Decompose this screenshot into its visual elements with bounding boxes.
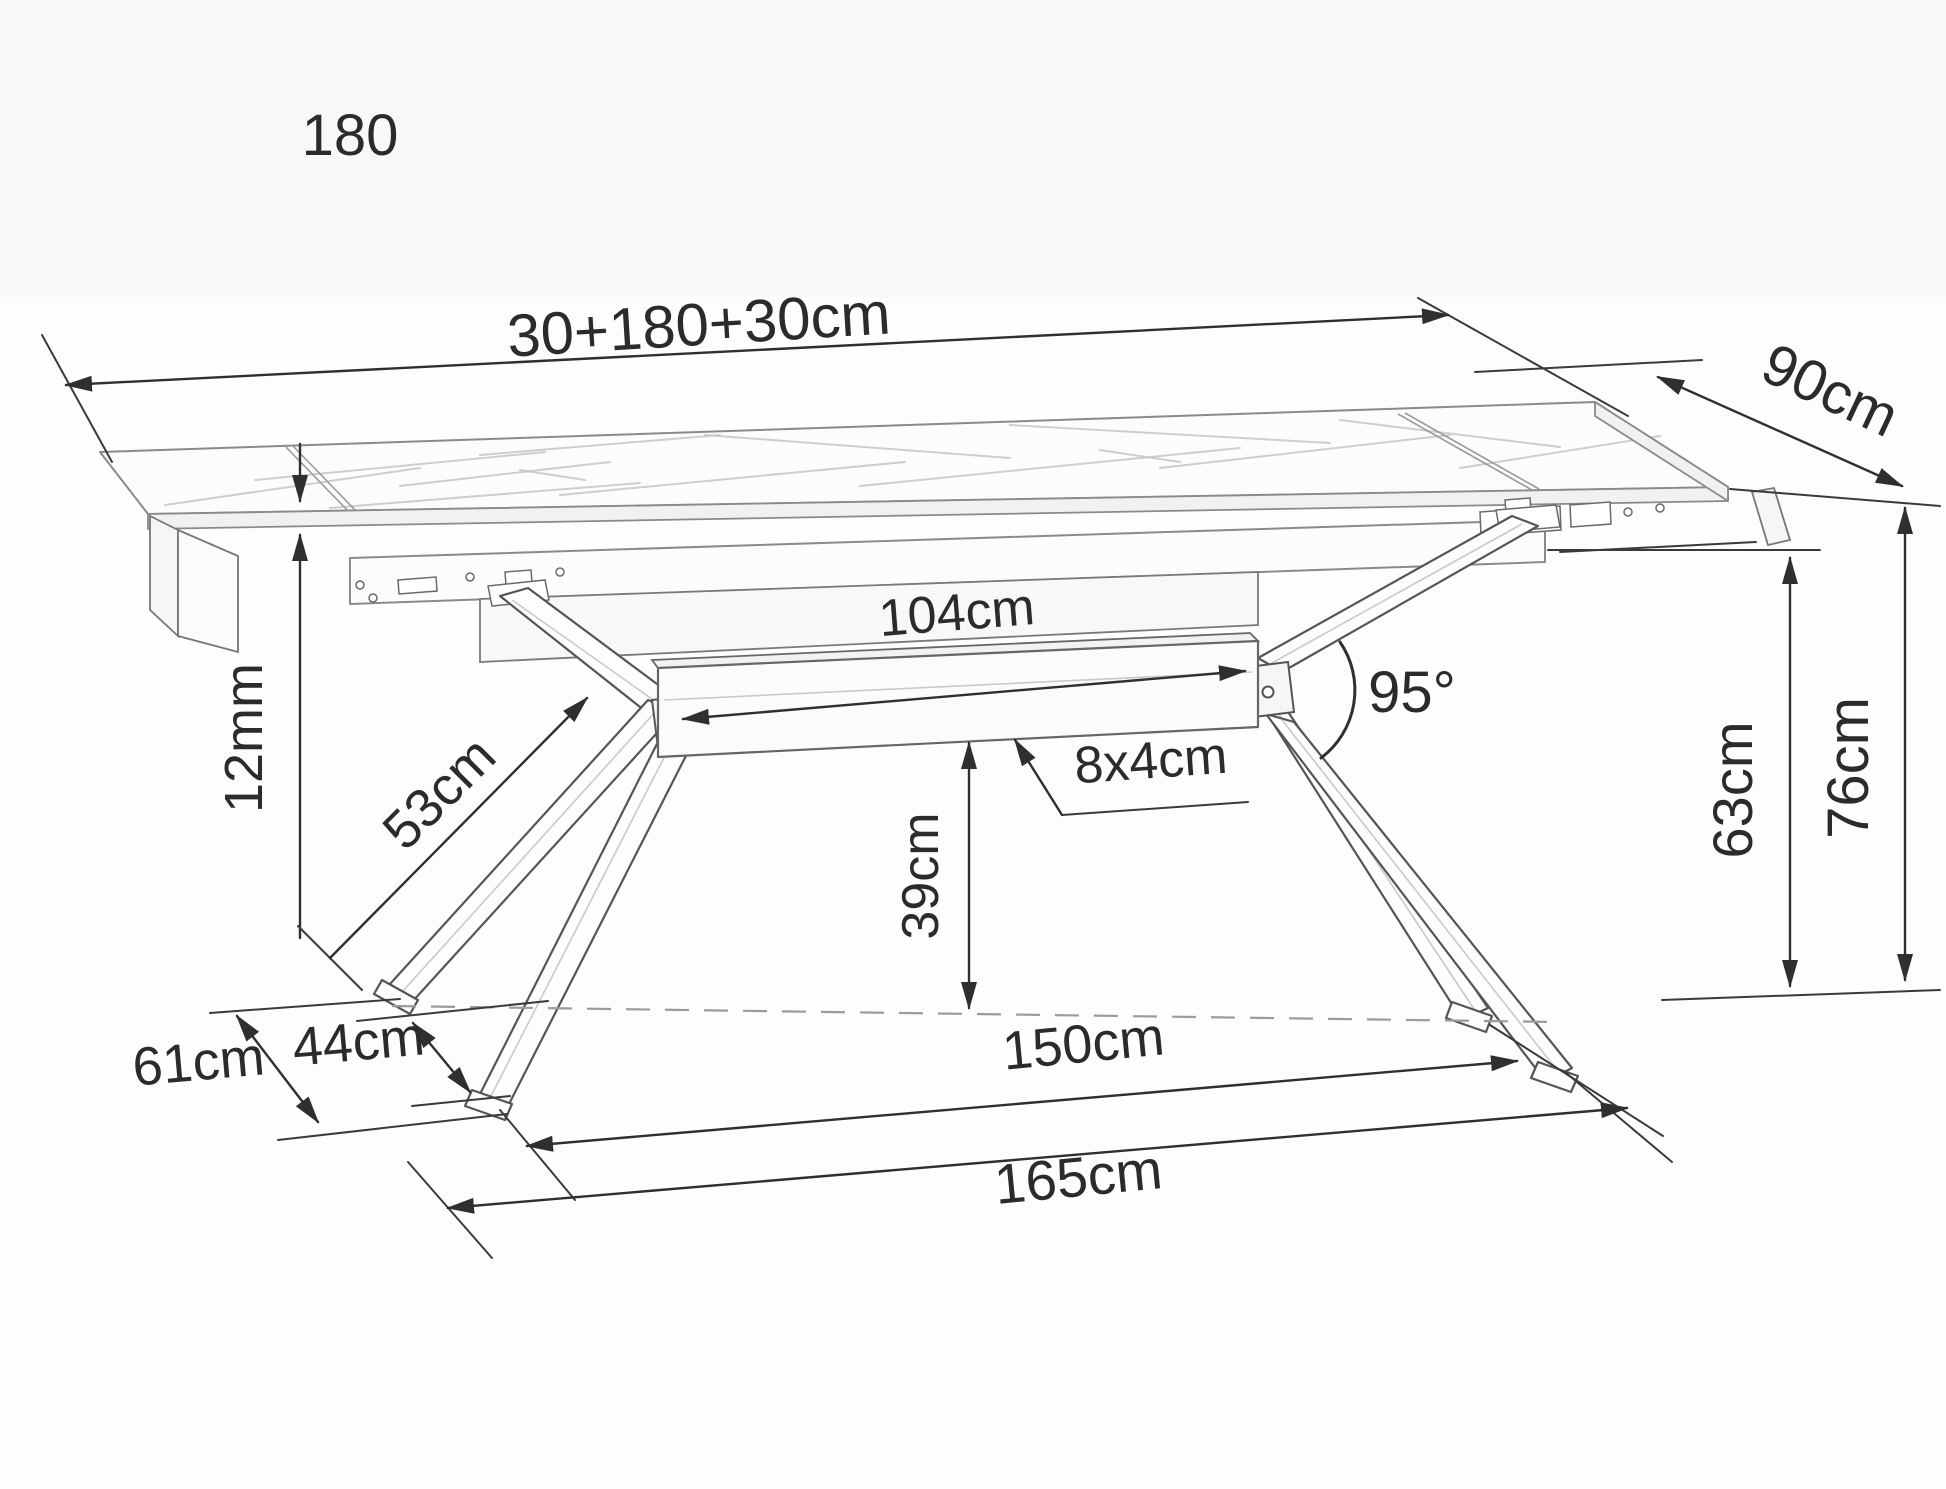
floor-reference-line [392, 1006, 1558, 1022]
right-hub-bolt [1263, 687, 1274, 698]
base-depth-outer-label: 61cm [130, 1026, 267, 1097]
background-band [0, 0, 1946, 297]
leg-angle-label: 95° [1368, 660, 1456, 725]
dimension-feet-span-outer: 165cm [408, 1072, 1672, 1258]
beam-length-label: 104cm [877, 578, 1037, 648]
beam-profile-label: 8x4cm [1072, 727, 1229, 796]
dimension-beam-clearance: 39cm [892, 743, 969, 1008]
leg-arm-label: 53cm [371, 725, 507, 861]
beam-clearance-label: 39cm [892, 812, 950, 939]
width-label: 90cm [1752, 331, 1908, 450]
top-thickness-label: 12mm [214, 663, 274, 813]
angle-arc [1321, 642, 1355, 758]
feet-span-outer-label: 165cm [991, 1137, 1164, 1216]
dimension-beam-profile: 8x4cm [1015, 727, 1248, 815]
table-height-label: 76cm [1816, 697, 1881, 839]
right-leg-assembly [1240, 505, 1578, 1092]
dimension-frame-height: 63cm [1548, 550, 1820, 986]
table-dimension-diagram-page: 180 30+180+30cm 90cm 12mm 53cm [0, 0, 1946, 1489]
table-dimension-diagram: 180 30+180+30cm 90cm 12mm 53cm [0, 0, 1946, 1489]
frame-height-label: 63cm [1701, 722, 1764, 859]
feet-span-inner-label: 150cm [1000, 1006, 1167, 1081]
dimension-leg-angle: 95° [1321, 642, 1456, 758]
base-depth-inner-label: 44cm [290, 1006, 427, 1077]
left-leaf-bracket [150, 516, 238, 652]
length-designation-label: 180 [302, 103, 399, 168]
